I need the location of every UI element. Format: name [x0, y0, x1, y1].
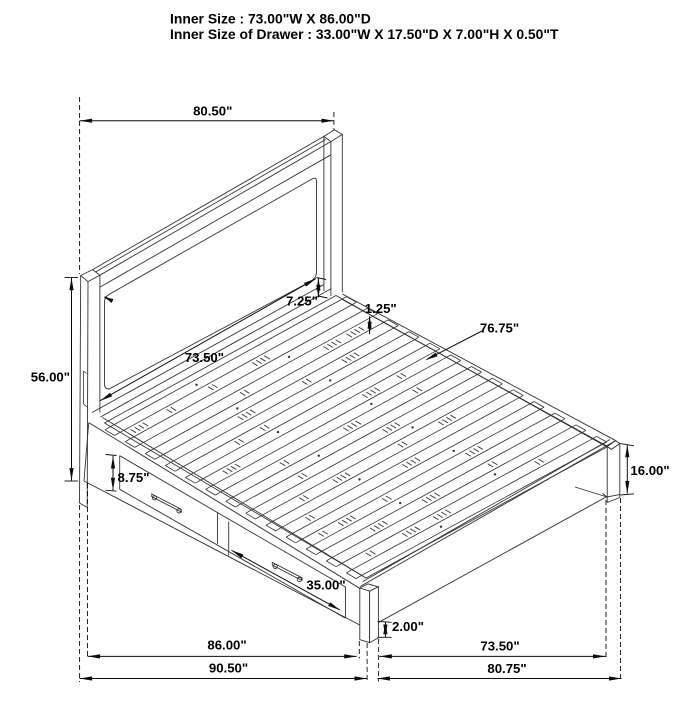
- svg-text:Inner Size of Drawer : 33.00"W: Inner Size of Drawer : 33.00"W X 17.50"D…: [170, 26, 559, 42]
- svg-text:1.25": 1.25": [365, 301, 397, 316]
- svg-text:73.50": 73.50": [185, 350, 224, 365]
- svg-text:35.00": 35.00": [306, 578, 345, 593]
- svg-text:56.00": 56.00": [31, 369, 70, 384]
- svg-text:80.75": 80.75": [487, 661, 526, 676]
- svg-text:8.75": 8.75": [118, 470, 150, 485]
- svg-text:90.50": 90.50": [209, 661, 248, 676]
- svg-text:73.50": 73.50": [480, 639, 519, 654]
- svg-text:86.00": 86.00": [207, 638, 246, 653]
- svg-text:7.25": 7.25": [286, 294, 318, 309]
- svg-text:Inner Size : 73.00"W X 86.00"D: Inner Size : 73.00"W X 86.00"D: [170, 11, 371, 27]
- svg-text:2.00": 2.00": [392, 619, 424, 634]
- svg-text:80.50": 80.50": [193, 104, 232, 119]
- svg-text:76.75": 76.75": [480, 321, 519, 336]
- svg-text:16.00": 16.00": [630, 463, 669, 478]
